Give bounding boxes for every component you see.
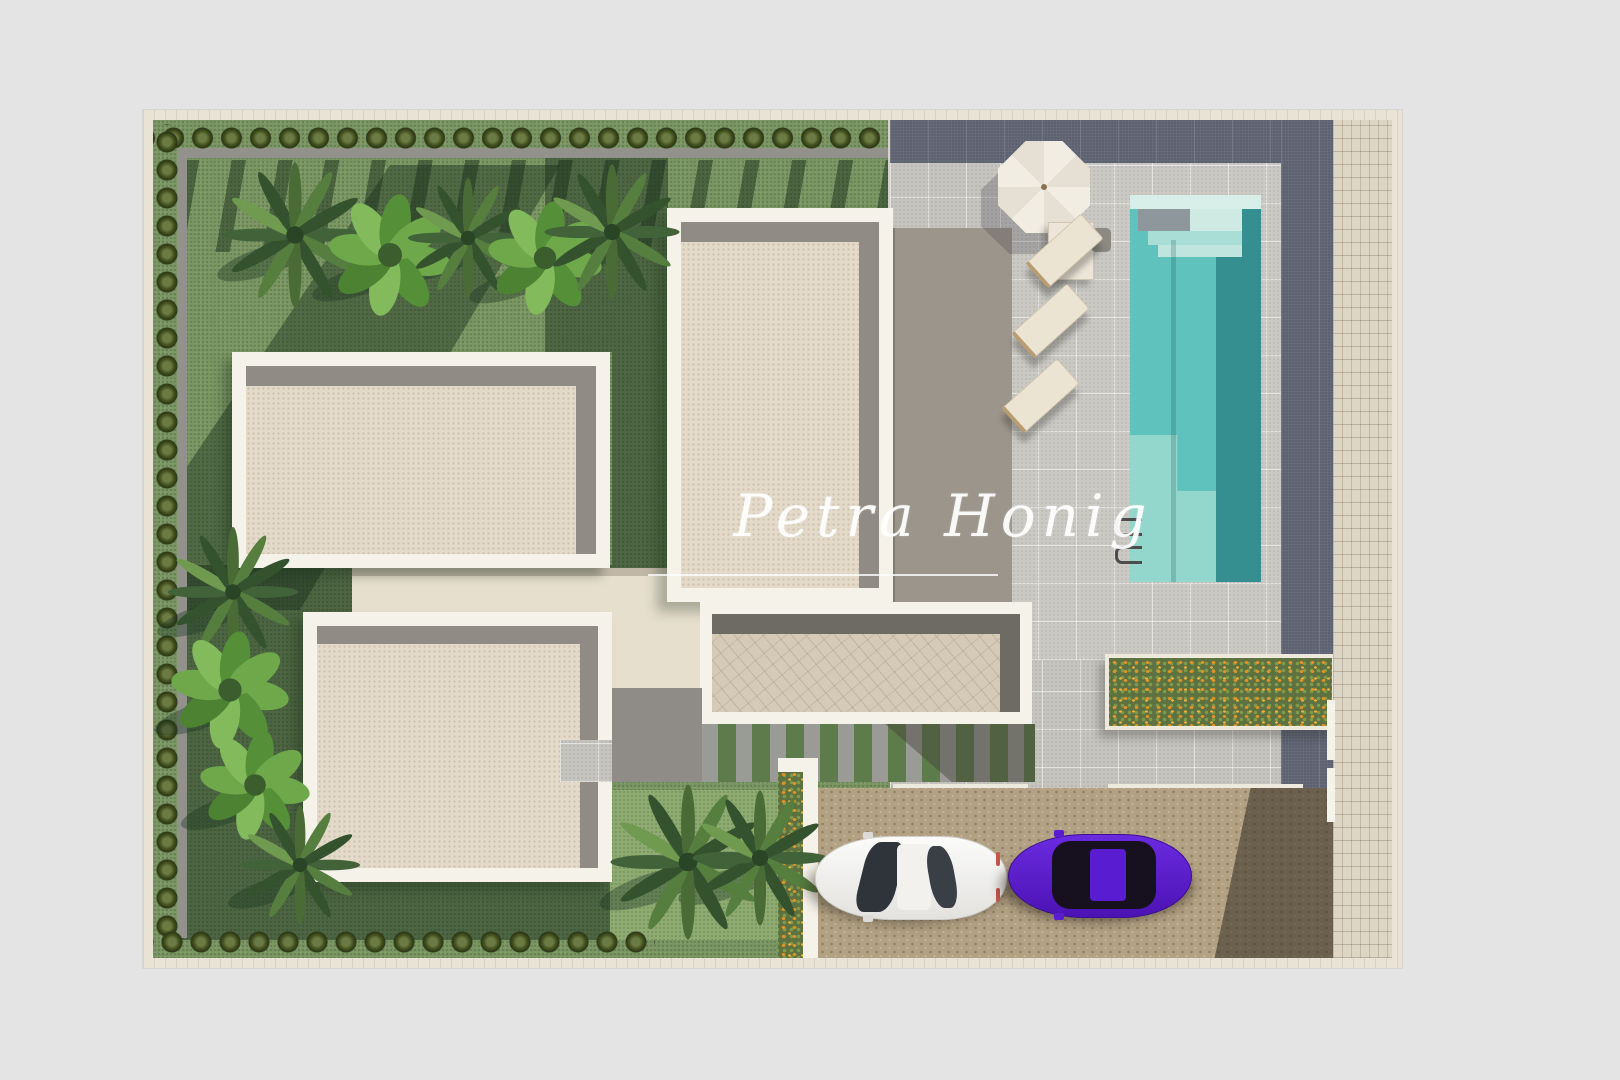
purple-car-roof (1090, 849, 1126, 901)
white-car-roof (897, 844, 931, 910)
purple-car (1008, 834, 1190, 916)
render-frame: Petra Honig (143, 110, 1402, 968)
purple-car-mirror-bottom (1054, 913, 1064, 920)
white-car-mirror-top (863, 832, 873, 839)
white-car-mirror-bottom (863, 915, 873, 922)
cobble-sidewalk (1333, 120, 1392, 958)
watermark-underline (648, 574, 998, 576)
white-car (815, 836, 1005, 918)
purple-car-mirror-top (1054, 830, 1064, 837)
white-car-taillight-bottom (996, 888, 1000, 902)
white-car-taillight-top (996, 852, 1000, 866)
gate-post-1 (1327, 700, 1335, 760)
gate-post-2 (1327, 768, 1335, 822)
